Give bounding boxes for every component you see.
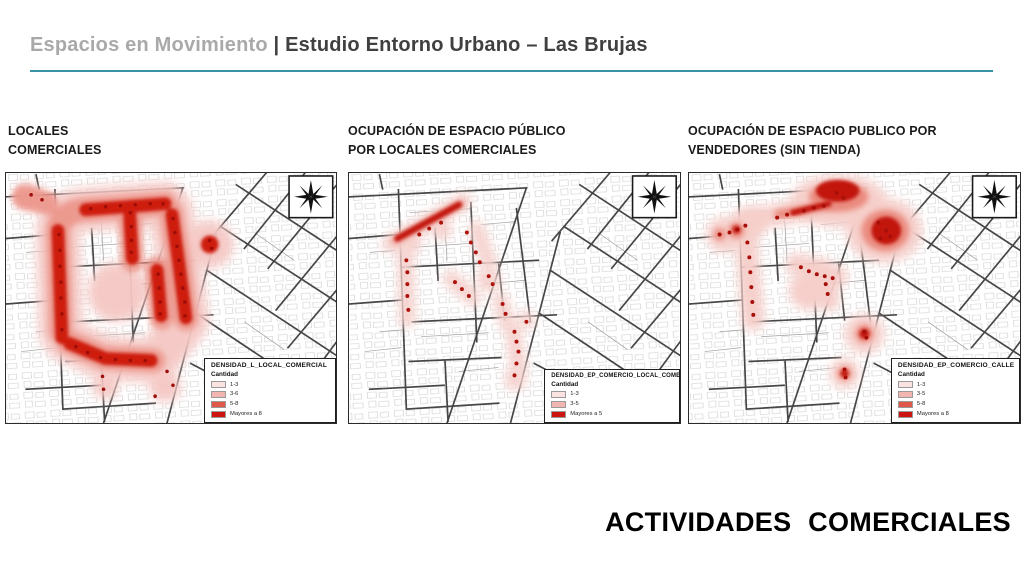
legend-item-label: Mayores a 8 (917, 411, 949, 417)
slide: Espacios en Movimiento | Estudio Entorno… (0, 0, 1024, 576)
legend-swatch (211, 411, 226, 419)
legend-item: 3-5 (551, 401, 675, 409)
map3-legend: DENSIDAD_EP_COMERCIO_CALLE Cantidad 1-3 … (891, 358, 1020, 423)
legend-item-label: 3-6 (230, 391, 238, 397)
slide-caption: ACTIVIDADES COMERCIALES (605, 507, 1011, 538)
legend-swatch (898, 401, 913, 409)
legend-item-label: 1-3 (917, 382, 925, 388)
map1-frame: DENSIDAD_L_LOCAL_COMERCIAL Cantidad 1-3 … (5, 172, 337, 424)
legend-subtitle: Cantidad (551, 381, 675, 388)
map1-title-line2: COMERCIALES (8, 141, 101, 160)
legend-subtitle: Cantidad (211, 371, 331, 378)
legend-swatch (551, 401, 566, 409)
map3-title-line1: OCUPACIÓN DE ESPACIO PUBLICO POR (688, 122, 937, 141)
map2-title-line2: POR LOCALES COMERCIALES (348, 141, 566, 160)
map1-title-line1: LOCALES (8, 122, 101, 141)
legend-rows: 1-3 3-6 5-8 Mayores a 8 (211, 381, 331, 418)
legend-rows: 1-3 3-5 5-8 Mayores a 8 (898, 381, 1015, 418)
legend-swatch (211, 381, 226, 389)
legend-swatch (211, 401, 226, 409)
map3-title-line2: VENDEDORES (SIN TIENDA) (688, 141, 937, 160)
legend-title: DENSIDAD_L_LOCAL_COMERCIAL (211, 362, 331, 369)
map1-title: LOCALES COMERCIALES (8, 122, 101, 161)
legend-item: 3-6 (211, 391, 331, 399)
legend-item: 5-8 (898, 401, 1015, 409)
legend-item-label: 1-3 (230, 382, 238, 388)
map3-title: OCUPACIÓN DE ESPACIO PUBLICO POR VENDEDO… (688, 122, 937, 161)
legend-item-label: 5-8 (230, 401, 238, 407)
legend-item: 5-8 (211, 401, 331, 409)
header-divider (30, 70, 993, 72)
legend-rows: 1-3 3-5 Mayores a 5 (551, 391, 675, 418)
map2-title-line1: OCUPACIÓN DE ESPACIO PÚBLICO (348, 122, 566, 141)
compass-rose-icon (289, 176, 333, 218)
slide-header-title: Espacios en Movimiento | Estudio Entorno… (30, 34, 648, 57)
legend-swatch (551, 411, 566, 419)
legend-swatch (898, 411, 913, 419)
legend-item: 1-3 (551, 391, 675, 399)
legend-swatch (551, 391, 566, 399)
legend-swatch (898, 381, 913, 389)
map2-title: OCUPACIÓN DE ESPACIO PÚBLICO POR LOCALES… (348, 122, 566, 161)
legend-item: 1-3 (898, 381, 1015, 389)
legend-item-label: Mayores a 8 (230, 411, 262, 417)
legend-swatch (211, 391, 226, 399)
legend-item: Mayores a 8 (898, 411, 1015, 419)
legend-title: DENSIDAD_EP_COMERCIO_CALLE (898, 362, 1015, 369)
legend-item: 3-5 (898, 391, 1015, 399)
legend-subtitle: Cantidad (898, 371, 1015, 378)
map1-legend: DENSIDAD_L_LOCAL_COMERCIAL Cantidad 1-3 … (204, 358, 336, 423)
legend-title: DENSIDAD_EP_COMERCIO_LOCAL_COMERCIAL (551, 373, 675, 379)
map3-frame: DENSIDAD_EP_COMERCIO_CALLE Cantidad 1-3 … (688, 172, 1021, 424)
compass-rose-icon (973, 176, 1017, 218)
legend-item: 1-3 (211, 381, 331, 389)
legend-item-label: 1-3 (570, 391, 578, 397)
legend-item-label: 5-8 (917, 401, 925, 407)
map2-frame: DENSIDAD_EP_COMERCIO_LOCAL_COMERCIAL Can… (348, 172, 681, 424)
header-title-light: Espacios en Movimiento (30, 34, 274, 56)
map2-legend: DENSIDAD_EP_COMERCIO_LOCAL_COMERCIAL Can… (544, 369, 680, 423)
legend-item: Mayores a 8 (211, 411, 331, 419)
legend-item-label: 3-5 (570, 401, 578, 407)
header-title-dark: | Estudio Entorno Urbano – Las Brujas (274, 34, 648, 56)
legend-swatch (898, 391, 913, 399)
legend-item-label: 3-5 (917, 391, 925, 397)
compass-rose-icon (633, 176, 677, 218)
legend-item: Mayores a 5 (551, 411, 675, 419)
legend-item-label: Mayores a 5 (570, 411, 602, 417)
